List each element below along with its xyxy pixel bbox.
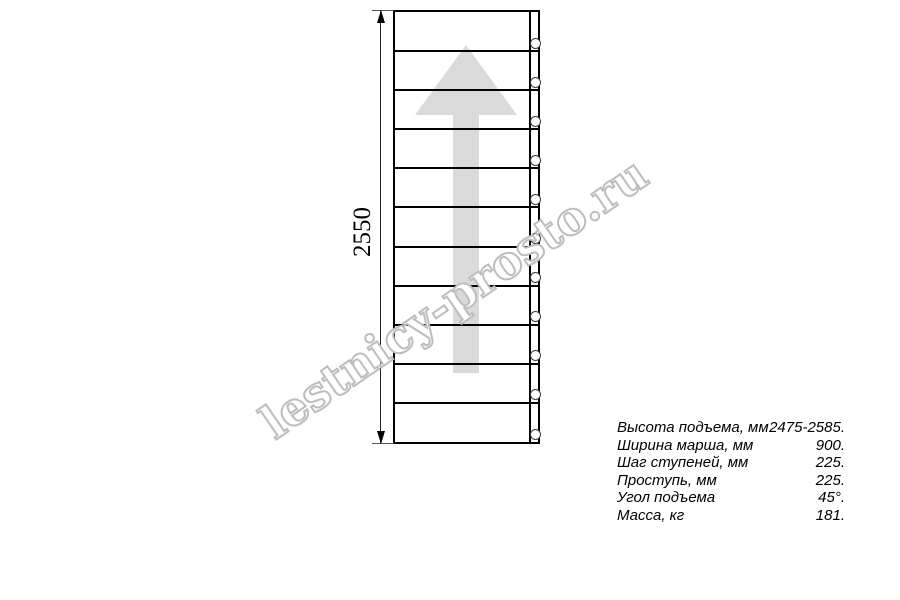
step-divider [395,167,538,169]
staircase-plan [393,10,540,444]
step-divider [395,50,538,52]
specs-table: Высота подъема, мм2475-2585.Ширина марша… [617,419,845,524]
step-divider [395,89,538,91]
spec-row: Высота подъема, мм2475-2585. [617,419,845,437]
step-divider [395,246,538,248]
dimension-arrowhead-up-icon [377,10,385,23]
fastener-circle [530,429,541,440]
fastener-circle [530,311,541,322]
fastener-circle [530,194,541,205]
step-divider [395,363,538,365]
spec-label: Шаг ступеней, мм [617,454,748,472]
spec-value: 181. [816,507,845,525]
step-divider [395,285,538,287]
spec-label: Масса, кг [617,507,684,525]
spec-value: 225. [816,472,845,490]
spec-row: Шаг ступеней, мм225. [617,454,845,472]
step-divider [395,324,538,326]
spec-label: Высота подъема, мм [617,419,769,437]
fastener-circle [530,38,541,49]
spec-label: Угол подъема [617,489,715,507]
spec-row: Проступь, мм225. [617,472,845,490]
dimension-label: 2550 [350,187,376,277]
spec-value: 45°. [818,489,845,507]
step-divider [395,206,538,208]
fastener-circle [530,77,541,88]
spec-value: 225. [816,454,845,472]
technical-drawing-canvas: 2550 Высота подъема, мм2475-2585.Ширина … [0,0,900,600]
step-divider [395,128,538,130]
spec-row: Угол подъема45°. [617,489,845,507]
spec-value: 2475-2585. [769,419,845,437]
fastener-circle [530,233,541,244]
dimension-arrowhead-down-icon [377,431,385,444]
stringer-line [529,12,531,442]
spec-row: Масса, кг181. [617,507,845,525]
spec-label: Проступь, мм [617,472,717,490]
step-divider [395,402,538,404]
fastener-circle [530,389,541,400]
dimension-line [380,10,381,444]
fastener-circle [530,155,541,166]
spec-value: 900. [816,437,845,455]
fastener-circle [530,116,541,127]
spec-label: Ширина марша, мм [617,437,753,455]
spec-row: Ширина марша, мм900. [617,437,845,455]
fastener-circle [530,272,541,283]
fastener-circle [530,350,541,361]
